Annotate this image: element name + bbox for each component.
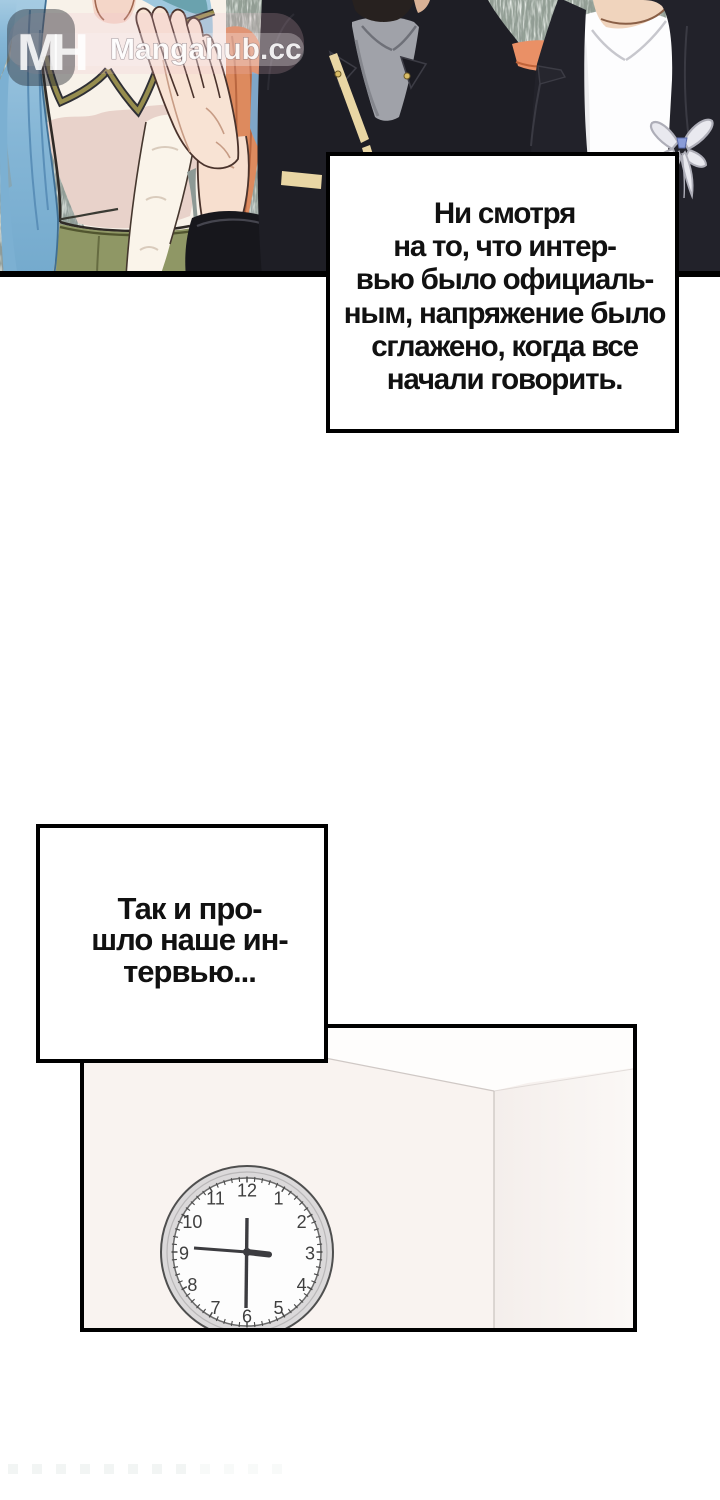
svg-text:9: 9 (179, 1243, 189, 1263)
svg-text:10: 10 (182, 1212, 202, 1232)
svg-text:1: 1 (273, 1189, 283, 1209)
svg-text:MH: MH (17, 24, 86, 82)
svg-text:2: 2 (297, 1212, 307, 1232)
svg-text:12: 12 (237, 1180, 257, 1200)
svg-text:7: 7 (210, 1298, 220, 1318)
svg-text:11: 11 (206, 1189, 225, 1209)
svg-text:5: 5 (273, 1298, 283, 1318)
svg-text:8: 8 (187, 1275, 197, 1295)
svg-text:Mangahub.cc: Mangahub.cc (110, 33, 302, 66)
svg-text:4: 4 (297, 1275, 307, 1295)
svg-text:3: 3 (305, 1243, 315, 1263)
svg-text:6: 6 (242, 1306, 252, 1326)
